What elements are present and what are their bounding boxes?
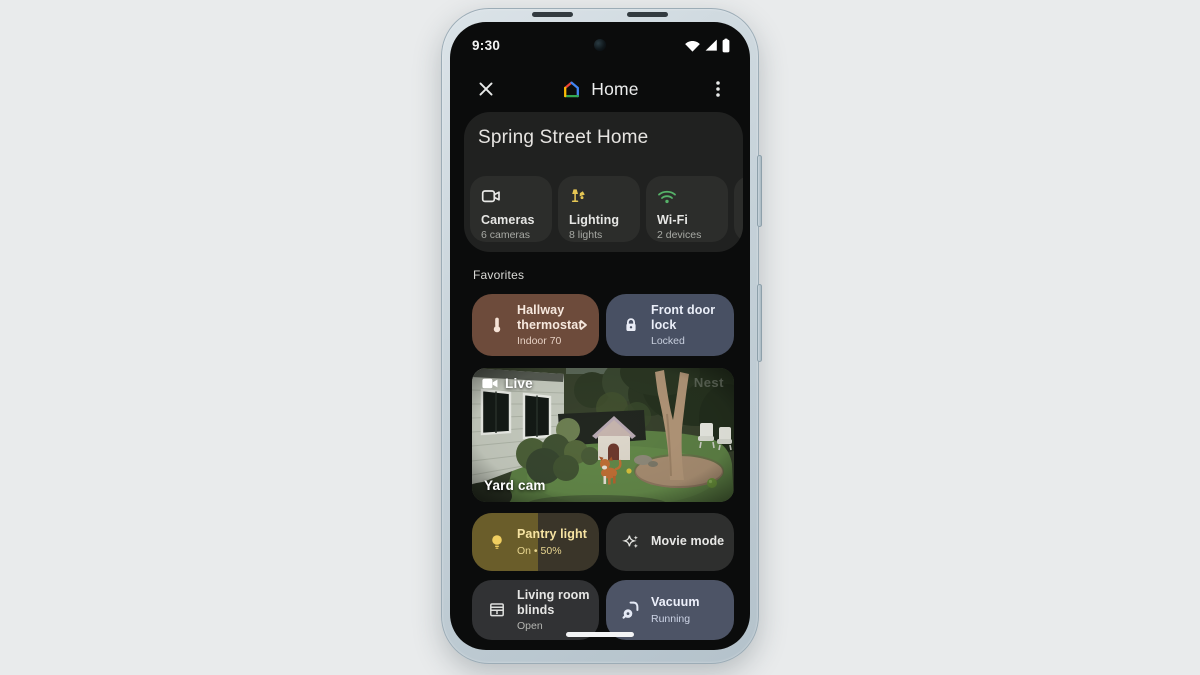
vacuum-icon [620,600,642,620]
videocam-live-icon [482,377,498,390]
clock: 9:30 [472,38,500,53]
sparkle-icon [620,533,642,551]
camera-visor-slot [627,12,668,17]
chip-partial[interactable] [734,176,743,242]
tile-pantry-light[interactable]: Pantry light On • 50% [472,513,599,571]
tile-living-room-blinds[interactable]: Living room blinds Open [472,580,599,640]
live-badge: Live [482,376,533,391]
category-chips-row: Cameras 6 cameras Lighting 8 [470,176,743,242]
app-header: Home [450,72,750,106]
phone-screen: 9:30 [450,22,750,650]
home-indicator-bar[interactable] [566,632,634,637]
favorites-heading: Favorites [473,268,524,282]
videocam-icon [481,186,541,206]
nest-watermark: Nest [694,375,724,390]
thermostat-icon [486,316,508,334]
volume-button [757,284,762,362]
lamp-icon [569,186,629,206]
tile-front-door-lock[interactable]: Front door lock Locked [606,294,734,356]
battery-icon [722,38,730,53]
chip-wifi[interactable]: Wi-Fi 2 devices [646,176,728,242]
lock-icon [620,316,642,334]
live-label: Live [505,376,533,391]
phone-device: 9:30 [441,8,759,664]
wifi-status-icon [685,38,700,53]
more-vert-icon [708,79,728,99]
tile-movie-mode[interactable]: Movie mode [606,513,734,571]
chip-cameras[interactable]: Cameras 6 cameras [470,176,552,242]
app-logo-title: Home [450,72,750,106]
app-title: Home [591,79,638,100]
camera-name: Yard cam [484,478,546,493]
cellular-signal-icon [704,38,718,52]
google-home-logo-icon [561,79,582,100]
tile-vacuum[interactable]: Vacuum Running [606,580,734,640]
lightbulb-icon [486,533,508,551]
chip-lighting[interactable]: Lighting 8 lights [558,176,640,242]
home-name: Spring Street Home [478,127,648,149]
chevron-right-icon [576,318,590,337]
tile-hallway-thermostat[interactable]: Hallway thermostat Indoor 70 [472,294,599,356]
wifi-icon [657,186,717,206]
blinds-icon [486,601,508,619]
power-button [757,155,762,227]
overflow-menu-button[interactable] [708,79,728,99]
home-summary-card: Spring Street Home Cameras 6 cameras [464,112,743,252]
speaker-slot [532,12,573,17]
selfie-camera [594,39,606,51]
camera-live-tile[interactable]: Live Nest Yard cam [472,368,734,502]
